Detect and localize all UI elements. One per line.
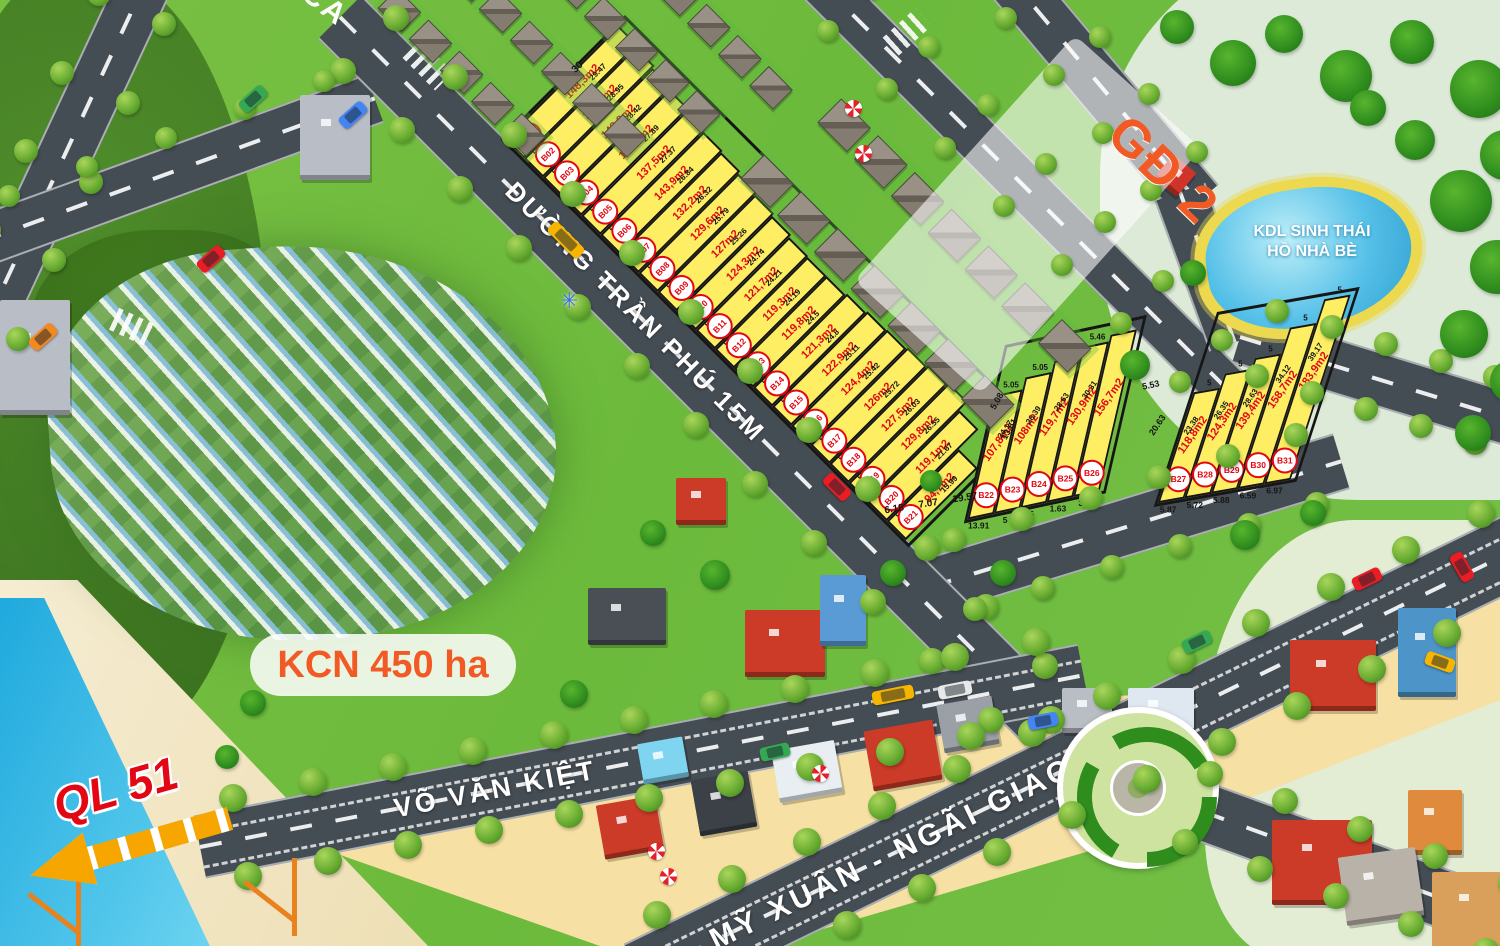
tree-icon (1320, 315, 1344, 339)
tree-icon (918, 36, 940, 58)
lot-bottom-width: 6.59 (1236, 490, 1259, 500)
tree-icon (855, 476, 881, 502)
palm-tree-icon (1395, 120, 1435, 160)
masterplan-map: ĐƯỜNG TRẦN PHÚ 15M VÕ VĂN KIỆT MỸ XUÂN -… (0, 0, 1500, 946)
tree-icon (934, 137, 956, 159)
tree-icon (1093, 682, 1121, 710)
tree-icon (876, 738, 904, 766)
tree-icon (914, 535, 940, 561)
tree-icon (1100, 555, 1124, 579)
tree-icon (993, 195, 1015, 217)
tree-icon (50, 61, 74, 85)
tree-icon (0, 185, 20, 207)
tree-icon (861, 659, 889, 687)
dimension-note: 20.63 (1147, 413, 1168, 437)
tree-icon (506, 235, 532, 261)
tree-icon (116, 91, 140, 115)
palm-tree-icon (1180, 260, 1206, 286)
tree-icon (1467, 500, 1495, 528)
palm-tree-icon (700, 560, 730, 590)
tree-icon (1138, 83, 1160, 105)
lot-id-badge: B26 (1078, 460, 1104, 486)
tree-icon (555, 800, 583, 828)
tree-icon (983, 838, 1011, 866)
tree-icon (1169, 371, 1191, 393)
tree-icon (876, 78, 898, 100)
umbrella-icon (648, 843, 665, 860)
house-icon (718, 35, 762, 79)
palm-tree-icon (560, 680, 588, 708)
tree-icon (1216, 444, 1240, 468)
tree-icon (1245, 364, 1269, 388)
tree-icon (801, 530, 827, 556)
palm-tree-icon (1440, 310, 1488, 358)
industrial-zone-label: KCN 450 ha (250, 634, 516, 696)
building-icon (745, 610, 825, 677)
tree-icon (942, 528, 966, 552)
tree-icon (716, 769, 744, 797)
tree-icon (1032, 653, 1058, 679)
tree-icon (833, 911, 861, 939)
building-icon (0, 300, 70, 415)
lot-bottom-width: 13.91 (967, 520, 990, 530)
tree-icon (817, 20, 839, 42)
lot-bottom-width: 1.63 (1046, 504, 1069, 514)
tree-icon (1035, 153, 1057, 175)
tree-icon (1317, 573, 1345, 601)
lot-id-badge: B25 (1052, 465, 1078, 491)
tree-icon (678, 299, 704, 325)
lot-bottom-width: 5.72 (1183, 500, 1206, 510)
compass-icon: ✳ (560, 288, 578, 314)
tree-icon (389, 117, 415, 143)
palm-tree-icon (1430, 170, 1492, 232)
tree-icon (1347, 816, 1373, 842)
umbrella-icon (845, 100, 862, 117)
lot-top-width: 5 (1259, 344, 1282, 353)
palm-tree-icon (1350, 90, 1386, 126)
tree-icon (737, 358, 763, 384)
tree-icon (868, 792, 896, 820)
umbrella-icon (855, 145, 872, 162)
lot-id-badge: B31 (1271, 448, 1297, 474)
building-icon (820, 575, 866, 646)
lot-top-width: 5.05 (1029, 363, 1052, 372)
tree-icon (475, 816, 503, 844)
house-icon (479, 0, 523, 33)
house-icon (656, 0, 700, 16)
tree-icon (1323, 883, 1349, 909)
palm-tree-icon (1210, 40, 1256, 86)
building-icon (1432, 872, 1500, 946)
palm-tree-icon (1230, 520, 1260, 550)
house-icon (510, 21, 554, 65)
building-icon (637, 736, 689, 784)
tree-icon (299, 768, 327, 796)
tree-icon (219, 784, 247, 812)
umbrella-icon (660, 868, 677, 885)
palm-tree-icon (1455, 415, 1491, 451)
tree-icon (1433, 619, 1461, 647)
lot-id-badge: B23 (999, 477, 1025, 503)
tree-icon (977, 94, 999, 116)
umbrella-icon (812, 765, 829, 782)
tree-icon (1211, 329, 1233, 351)
palm-tree-icon (990, 560, 1016, 586)
tree-icon (781, 675, 809, 703)
tree-icon (1300, 381, 1324, 405)
tree-icon (620, 706, 648, 734)
tree-icon (1197, 761, 1223, 787)
tree-icon (742, 471, 768, 497)
palm-tree-icon (1450, 60, 1500, 118)
tree-icon (1172, 829, 1198, 855)
lake-label: KDL SINH THÁI HỒ NHÀ BÈ (1212, 222, 1412, 262)
tree-icon (683, 412, 709, 438)
palm-tree-icon (240, 690, 266, 716)
tree-icon (1168, 534, 1192, 558)
tree-icon (442, 64, 468, 90)
tree-icon (957, 722, 985, 750)
lot-top-width: 5 (1328, 285, 1351, 294)
lot-bottom-width: 6.97 (1263, 486, 1286, 496)
building-icon (588, 588, 666, 645)
tree-icon (963, 597, 987, 621)
house-icon (687, 4, 731, 48)
tree-icon (908, 874, 936, 902)
tree-icon (860, 589, 886, 615)
tree-icon (943, 755, 971, 783)
tree-icon (1022, 628, 1050, 656)
house-icon (749, 66, 793, 110)
tree-icon (1089, 26, 1111, 48)
tree-icon (796, 417, 822, 443)
lot-bottom-width: 5.87 (1157, 504, 1180, 514)
tree-icon (1409, 414, 1433, 438)
palm-tree-icon (920, 470, 942, 492)
lot-top-width: 5 (1198, 378, 1221, 387)
tree-icon (1358, 655, 1386, 683)
palm-tree-icon (215, 745, 239, 769)
house-icon (584, 0, 628, 40)
tree-icon (995, 7, 1017, 29)
tree-icon (14, 139, 38, 163)
car-icon (1180, 629, 1213, 655)
palm-tree-icon (1390, 20, 1434, 64)
tree-icon (1265, 299, 1289, 323)
tree-icon (1079, 486, 1103, 510)
tree-icon (383, 5, 409, 31)
tree-icon (6, 327, 30, 351)
palm-tree-icon (880, 560, 906, 586)
tree-icon (1283, 692, 1311, 720)
tree-icon (447, 176, 473, 202)
house-icon (854, 135, 908, 189)
palm-tree-icon (1120, 350, 1150, 380)
house-icon (553, 0, 597, 9)
tree-icon (1133, 765, 1161, 793)
tree-icon (624, 353, 650, 379)
palm-tree-icon (1265, 15, 1303, 53)
tree-icon (379, 753, 407, 781)
palm-tree-icon (1300, 500, 1326, 526)
palm-tree-icon (640, 520, 666, 546)
tree-icon (1031, 576, 1055, 600)
building-icon (676, 478, 726, 525)
lot-bottom-width: 5.88 (1210, 495, 1233, 505)
tree-icon (313, 70, 335, 92)
palm-tree-icon (1160, 10, 1194, 44)
lot-top-width: 5 (1294, 314, 1317, 323)
crane-icon (268, 850, 328, 940)
lot-id-badge: B24 (1025, 471, 1051, 497)
tree-icon (1398, 911, 1424, 937)
tree-icon (718, 865, 746, 893)
